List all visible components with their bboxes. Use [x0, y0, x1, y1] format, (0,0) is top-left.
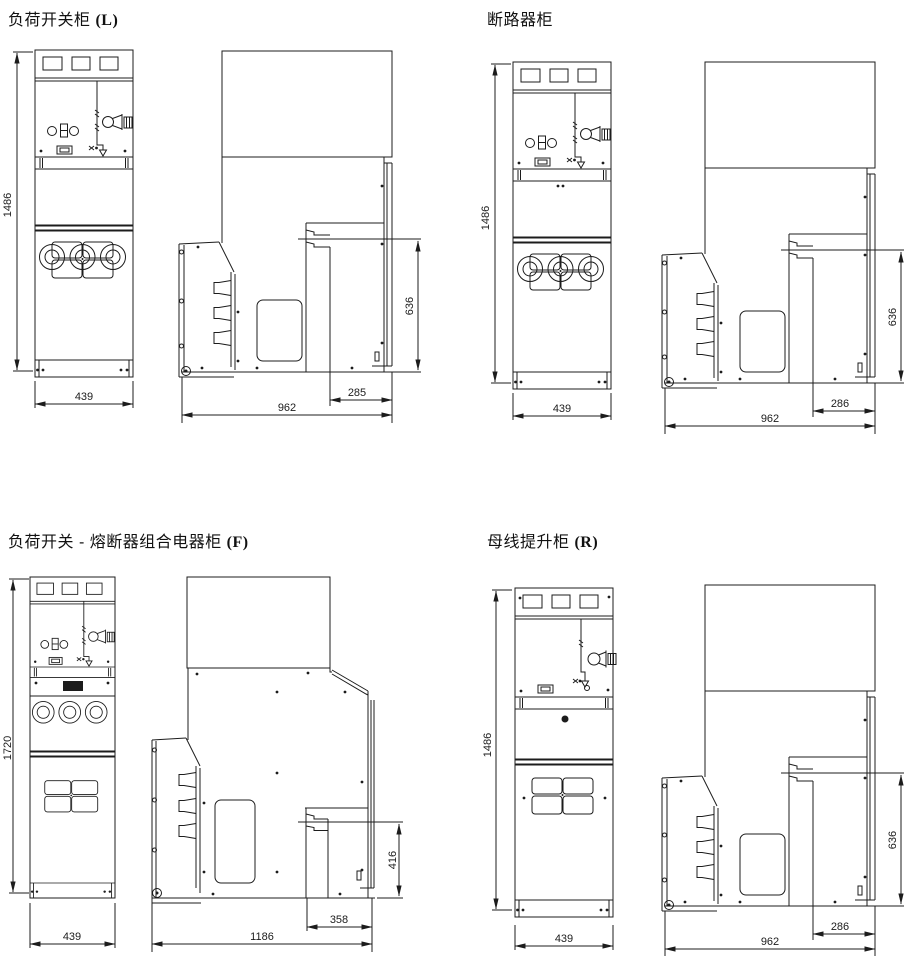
front-view: [515, 588, 616, 917]
dim-depth-label: 962: [761, 936, 779, 948]
side-view: [179, 51, 421, 423]
dim-height-label: 1486: [482, 733, 494, 757]
fuse-window: [63, 681, 83, 691]
engineering-drawing: 1486 439 962 285 636 1486 439 962 286: [0, 0, 906, 956]
knob-dot: [562, 716, 569, 723]
dim-offset-label: 286: [831, 921, 849, 933]
dim-width-label: 439: [75, 391, 93, 403]
dimension-lines: [492, 590, 613, 950]
dim-width-label: 439: [63, 931, 81, 943]
front-view: [513, 62, 611, 389]
panel-breaker: 1486 439 962 286 636: [480, 62, 904, 434]
rivet-dot: [562, 185, 565, 188]
drawing-sheet: 负荷开关柜 (L) 断路器柜 负荷开关 - 熔断器组合电器柜 (F) 母线提升柜…: [0, 0, 906, 956]
panel-bus-riser: 1486 439 962 286 636: [482, 585, 904, 956]
dim-width-label: 439: [555, 933, 573, 945]
dim-depth-label: 962: [278, 402, 296, 414]
mimic-diagram: [520, 619, 616, 693]
side-view: [152, 577, 403, 903]
side-view: [662, 585, 904, 956]
dim-side-height-label: 636: [887, 831, 899, 849]
dim-offset-label: 358: [330, 914, 348, 926]
dim-depth-label: 962: [761, 413, 779, 425]
dim-width-label: 439: [553, 403, 571, 415]
dim-offset-label: 285: [348, 387, 366, 399]
panel-load-switch: 1486 439 962 285 636: [2, 50, 421, 423]
dim-side-height-label: 416: [387, 851, 399, 869]
side-view: [662, 62, 904, 434]
front-view: [35, 50, 133, 377]
dim-height-label: 1720: [2, 736, 14, 760]
dim-height-label: 1486: [2, 193, 14, 217]
front-view: [30, 577, 115, 898]
dim-offset-label: 286: [831, 398, 849, 410]
dim-side-height-label: 636: [404, 297, 416, 315]
dim-height-label: 1486: [480, 206, 492, 230]
rivet-dot: [557, 185, 560, 188]
dim-side-height-label: 636: [887, 308, 899, 326]
panel-fuse-combo: 1720 439 1186 358 416: [2, 577, 403, 952]
dim-depth-label: 1186: [250, 931, 274, 943]
dimension-lines: [9, 579, 372, 952]
